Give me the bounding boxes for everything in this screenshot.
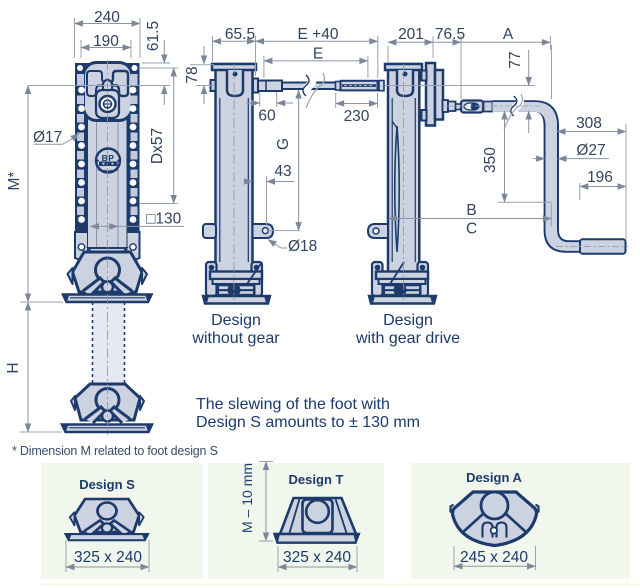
svg-text:77: 77 — [507, 51, 524, 68]
svg-text:Design S amounts to ± 130 mm: Design S amounts to ± 130 mm — [196, 414, 420, 431]
svg-text:245 x 240: 245 x 240 — [460, 549, 528, 566]
svg-text:M – 10 mm: M – 10 mm — [239, 463, 255, 533]
svg-text:Design S: Design S — [79, 477, 135, 492]
svg-text:B: B — [466, 202, 476, 219]
svg-text:65.5: 65.5 — [225, 26, 255, 43]
svg-text:Design T: Design T — [289, 472, 344, 487]
svg-text:230: 230 — [344, 108, 370, 125]
svg-text:without gear: without gear — [191, 330, 280, 347]
svg-text:43: 43 — [274, 163, 291, 180]
svg-text:M*: M* — [6, 172, 23, 191]
svg-text:with gear drive: with gear drive — [355, 330, 460, 347]
svg-text:325 x 240: 325 x 240 — [283, 549, 351, 566]
svg-text:Design: Design — [211, 312, 261, 329]
svg-text:308: 308 — [576, 115, 602, 132]
svg-text:G: G — [275, 138, 292, 150]
svg-text:350: 350 — [482, 147, 499, 173]
svg-text:60: 60 — [258, 108, 276, 125]
svg-text:H: H — [5, 362, 22, 373]
svg-text:78: 78 — [184, 66, 201, 83]
svg-text:A: A — [503, 26, 514, 43]
svg-text:190: 190 — [93, 33, 119, 50]
svg-text:Design: Design — [383, 312, 433, 329]
svg-text:□130: □130 — [146, 211, 182, 228]
svg-text:Ø18: Ø18 — [288, 238, 317, 255]
svg-text:196: 196 — [587, 169, 613, 186]
svg-text:Ø27: Ø27 — [576, 142, 605, 159]
svg-text:240: 240 — [94, 9, 120, 26]
svg-text:76.5: 76.5 — [435, 26, 465, 43]
svg-text:C: C — [466, 221, 477, 238]
svg-text:E: E — [313, 46, 323, 63]
svg-text:61.5: 61.5 — [145, 21, 162, 51]
svg-text:Dx57: Dx57 — [149, 128, 166, 164]
svg-text:201: 201 — [398, 26, 424, 43]
svg-text:The slewing of the foot with: The slewing of the foot with — [196, 396, 390, 413]
svg-text:325 x 240: 325 x 240 — [74, 549, 142, 566]
svg-text:* Dimension M related to foot: * Dimension M related to foot design S — [12, 444, 218, 458]
svg-text:Ø17: Ø17 — [33, 129, 62, 146]
svg-text:E +40: E +40 — [298, 26, 339, 43]
svg-text:Design A: Design A — [466, 470, 522, 485]
